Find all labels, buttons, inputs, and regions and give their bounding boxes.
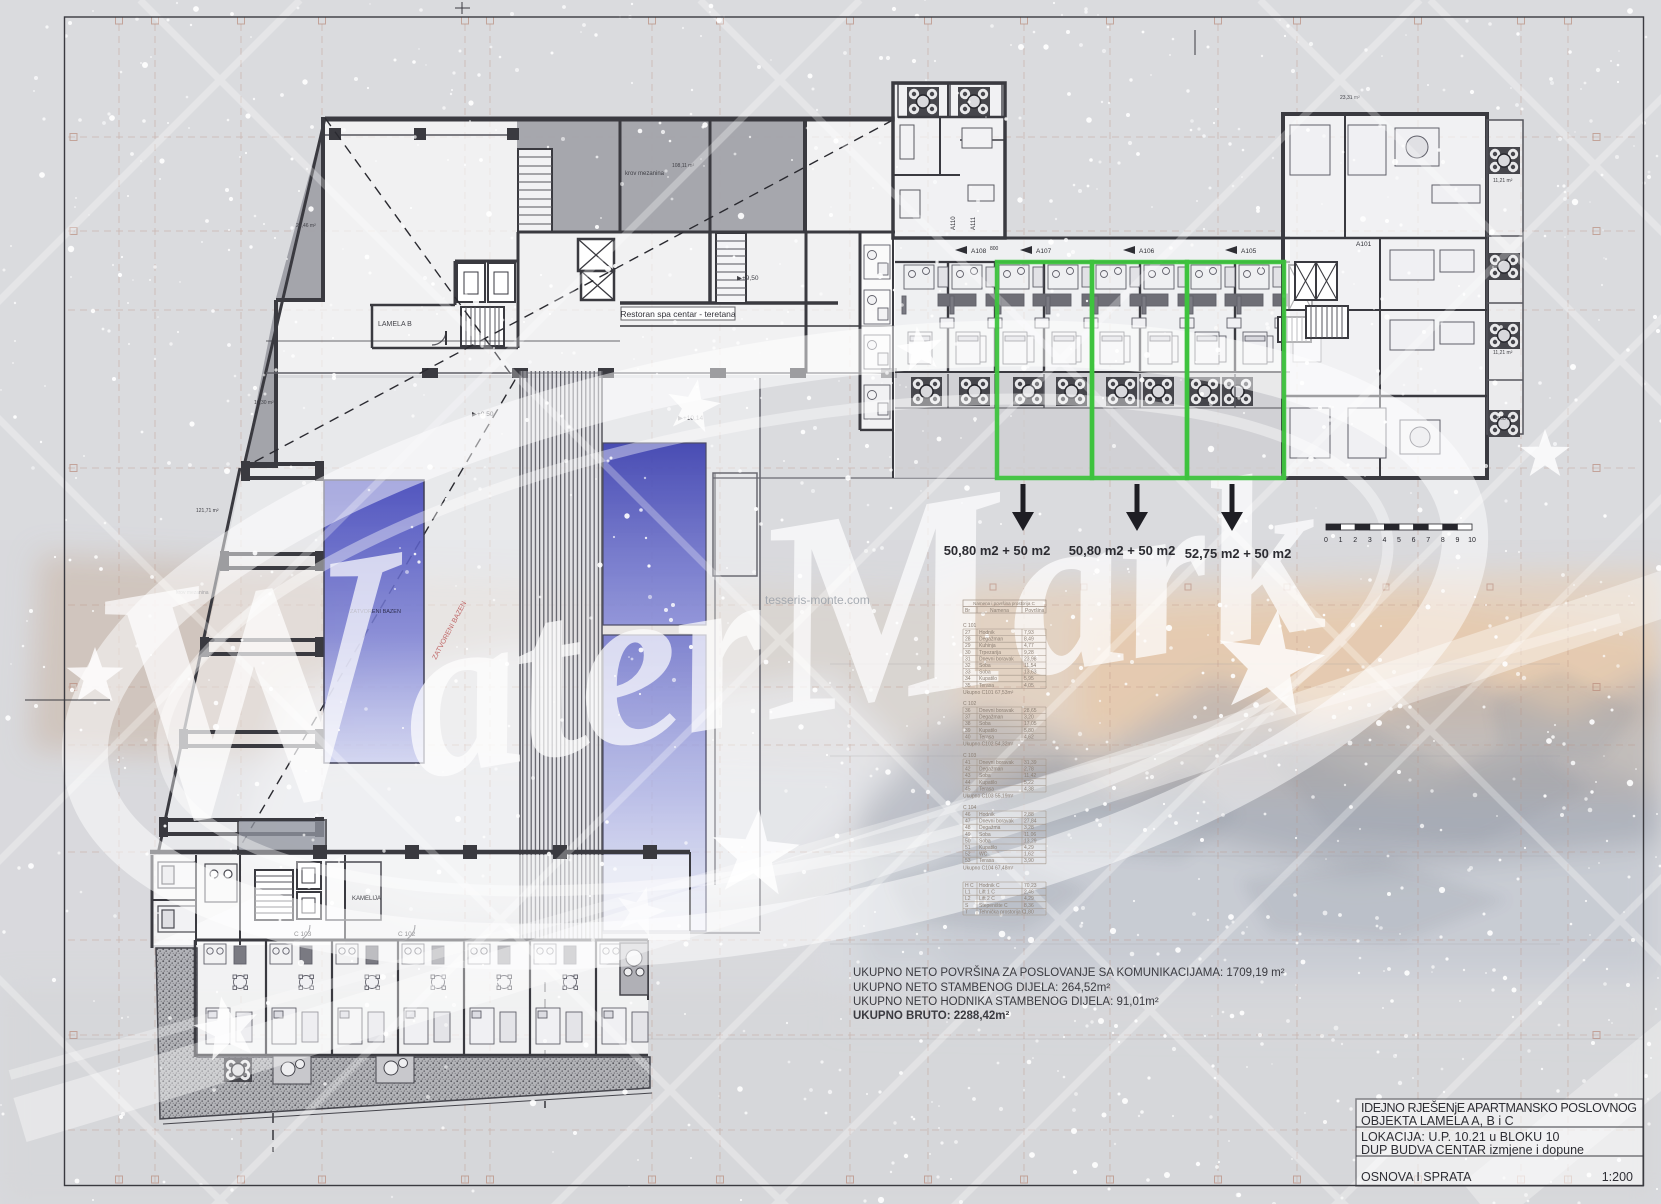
svg-text:5,80: 5,80	[1024, 728, 1034, 734]
svg-text:49: 49	[965, 832, 971, 838]
svg-text:39: 39	[965, 728, 971, 734]
svg-text:43: 43	[965, 773, 971, 779]
svg-text:A101: A101	[1356, 241, 1372, 248]
svg-text:5,95: 5,95	[1024, 676, 1034, 682]
svg-text:A111: A111	[971, 216, 977, 230]
svg-text:34: 34	[965, 676, 971, 682]
svg-text:5,22: 5,22	[1024, 780, 1034, 786]
svg-text:Stepenište C: Stepenište C	[979, 903, 1008, 909]
svg-text:3,90: 3,90	[1024, 858, 1034, 864]
svg-text:T: T	[965, 909, 968, 915]
svg-text:30: 30	[965, 650, 971, 656]
svg-text:Dnevni boravak: Dnevni boravak	[979, 760, 1014, 766]
svg-text:41: 41	[965, 760, 971, 766]
svg-text:28: 28	[965, 637, 971, 643]
svg-text:9,28: 9,28	[1024, 650, 1034, 656]
svg-text:Br: Br	[965, 608, 970, 614]
svg-text:23,98: 23,98	[1024, 656, 1037, 662]
svg-text:8,49: 8,49	[1024, 637, 1034, 643]
svg-text:2,78: 2,78	[1024, 767, 1034, 773]
svg-text:Soba: Soba	[979, 838, 991, 844]
svg-text:17,05: 17,05	[1024, 721, 1037, 727]
svg-text:22,46 m²: 22,46 m²	[296, 223, 316, 229]
svg-text:KAMELIJA: KAMELIJA	[352, 896, 381, 902]
svg-text:53: 53	[965, 858, 971, 864]
svg-text:3: 3	[1368, 537, 1372, 544]
svg-text:tesseris-monte.com: tesseris-monte.com	[765, 593, 870, 607]
svg-text:Ukupno C104 67,48m²: Ukupno C104 67,48m²	[963, 865, 1014, 871]
svg-text:13,29: 13,29	[1024, 838, 1037, 844]
svg-text:40: 40	[965, 734, 971, 740]
svg-text:Hodnik C: Hodnik C	[979, 883, 1000, 889]
svg-text:9: 9	[1455, 537, 1459, 544]
svg-text:3,28: 3,28	[1024, 825, 1034, 831]
svg-text:31,39: 31,39	[1024, 760, 1037, 766]
svg-text:C 102: C 102	[963, 701, 977, 707]
svg-text:3,68 m²: 3,68 m²	[1496, 416, 1513, 422]
svg-text:2,88: 2,88	[1024, 812, 1034, 818]
svg-text:4,29: 4,29	[1024, 845, 1034, 851]
svg-text:UKUPNO NETO HODNIKA STAMBENOG: UKUPNO NETO HODNIKA STAMBENOG DIJELA: 91…	[853, 996, 1159, 1008]
svg-text:51: 51	[965, 845, 971, 851]
svg-text:C 103: C 103	[963, 753, 977, 759]
svg-text:Soba: Soba	[979, 832, 991, 838]
svg-text:Degažman: Degažman	[979, 637, 1003, 643]
svg-text:Soba: Soba	[979, 670, 991, 676]
svg-text:4,38: 4,38	[1024, 786, 1034, 792]
svg-text:IDEJNO RJEŠENjE APARTMANSKO PO: IDEJNO RJEŠENjE APARTMANSKO POSLOVNOG	[1361, 1100, 1637, 1115]
svg-text:LAMELA B: LAMELA B	[378, 321, 412, 328]
svg-text:800: 800	[990, 246, 999, 252]
svg-text:5: 5	[1397, 537, 1401, 544]
svg-text:krov mezanina: krov mezanina	[625, 171, 665, 177]
svg-text:27,84: 27,84	[1024, 819, 1037, 825]
svg-text:28,65: 28,65	[1024, 708, 1037, 714]
svg-text:52: 52	[965, 852, 971, 858]
svg-text:Kupatilo: Kupatilo	[979, 728, 997, 734]
svg-text:44: 44	[965, 780, 971, 786]
svg-text:Terasa: Terasa	[979, 786, 994, 792]
svg-text:Degažman: Degažman	[979, 767, 1003, 773]
svg-text:45: 45	[965, 786, 971, 792]
svg-text:Soba: Soba	[979, 663, 991, 669]
svg-text:29: 29	[965, 643, 971, 649]
svg-text:11,06: 11,06	[1024, 832, 1036, 838]
svg-text:1: 1	[1339, 537, 1343, 544]
svg-text:8: 8	[1441, 537, 1445, 544]
svg-text:UKUPNO NETO STAMBENOG DIJELA:: UKUPNO NETO STAMBENOG DIJELA: 264,52m²	[853, 982, 1110, 994]
svg-text:Dnevni boravak: Dnevni boravak	[979, 656, 1014, 662]
svg-text:Ukupno C102 54,32m²: Ukupno C102 54,32m²	[963, 742, 1014, 748]
svg-text:36: 36	[965, 708, 971, 714]
svg-text:WC: WC	[979, 852, 988, 858]
svg-text:Površina: Površina	[1025, 608, 1045, 614]
svg-text:70,23: 70,23	[1024, 883, 1037, 889]
svg-text:11,54: 11,54	[1024, 663, 1036, 669]
svg-text:4,62: 4,62	[1024, 734, 1034, 740]
svg-text:50,80 m2 + 50 m2: 50,80 m2 + 50 m2	[944, 543, 1051, 558]
svg-text:Dnevni boravak: Dnevni boravak	[979, 819, 1014, 825]
svg-text:Dnevni boravak: Dnevni boravak	[979, 708, 1014, 714]
svg-text:C 104: C 104	[963, 805, 977, 811]
svg-text:6: 6	[1412, 537, 1416, 544]
svg-text:4,05: 4,05	[1024, 683, 1034, 689]
svg-text:C 101: C 101	[963, 623, 977, 629]
svg-text:OBJEKTA LAMELA A, B i C: OBJEKTA LAMELA A, B i C	[1361, 1114, 1514, 1128]
svg-text:Lift 1 C: Lift 1 C	[979, 890, 995, 896]
svg-text:Hodnik: Hodnik	[979, 812, 995, 818]
svg-text:Trpezarija: Trpezarija	[979, 650, 1001, 656]
svg-text:2,46: 2,46	[1024, 890, 1034, 896]
svg-text:A107: A107	[1036, 248, 1052, 255]
svg-text:8,36: 8,36	[1024, 903, 1034, 909]
svg-text:0: 0	[1324, 537, 1328, 544]
svg-text:Hodnik: Hodnik	[979, 630, 995, 636]
svg-text:Namena i površina prostorija C: Namena i površina prostorija C	[973, 601, 1036, 606]
svg-text:11,21 m²: 11,21 m²	[1493, 178, 1513, 184]
svg-text:A108: A108	[971, 248, 987, 255]
svg-text:Ukupno C103 55,19m²: Ukupno C103 55,19m²	[963, 794, 1014, 800]
svg-text:OSNOVA I SPRATA: OSNOVA I SPRATA	[1361, 1170, 1472, 1184]
svg-text:▶+9,50: ▶+9,50	[737, 275, 759, 282]
svg-text:Soba: Soba	[979, 773, 991, 779]
svg-text:Kupatilo: Kupatilo	[979, 676, 997, 682]
svg-text:27: 27	[965, 630, 971, 636]
svg-text:Ukupno C101 67,53m²: Ukupno C101 67,53m²	[963, 690, 1014, 696]
svg-text:1,80: 1,80	[1024, 909, 1034, 915]
svg-text:42: 42	[965, 767, 971, 773]
svg-text:Namena: Namena	[990, 608, 1009, 614]
svg-text:52,75 m2 + 50 m2: 52,75 m2 + 50 m2	[1185, 546, 1292, 561]
svg-text:32: 32	[965, 663, 971, 669]
svg-text:Terasa: Terasa	[979, 858, 994, 864]
svg-text:Lift 2 C: Lift 2 C	[979, 896, 995, 902]
svg-text:Soba: Soba	[979, 721, 991, 727]
svg-text:48: 48	[965, 825, 971, 831]
svg-text:Terasa: Terasa	[979, 734, 994, 740]
svg-text:46: 46	[965, 812, 971, 818]
svg-text:Kuhinja: Kuhinja	[979, 643, 996, 649]
svg-text:37: 37	[965, 715, 971, 721]
svg-text:A105: A105	[1241, 248, 1257, 255]
svg-text:2: 2	[1353, 537, 1357, 544]
svg-text:L2: L2	[965, 896, 971, 902]
svg-text:31: 31	[965, 656, 971, 662]
svg-text:7,93: 7,93	[1024, 630, 1034, 636]
svg-text:UKUPNO NETO POVRŠINA ZA POSLOV: UKUPNO NETO POVRŠINA ZA POSLOVANJE SA KO…	[853, 966, 1285, 979]
svg-text:10: 10	[1468, 537, 1476, 544]
svg-text:4,77: 4,77	[1024, 643, 1034, 649]
svg-text:Restoran spa centar - teretan: Restoran spa centar - teretana	[620, 309, 736, 319]
svg-text:50: 50	[965, 838, 971, 844]
svg-text:Tehnička prostorija C: Tehnička prostorija C	[979, 909, 1026, 915]
svg-text:Kupatilo: Kupatilo	[979, 780, 997, 786]
svg-text:35: 35	[965, 683, 971, 689]
svg-text:33: 33	[965, 670, 971, 676]
svg-text:7: 7	[1426, 537, 1430, 544]
svg-text:Terasa: Terasa	[979, 683, 994, 689]
svg-text:H C: H C	[965, 883, 974, 889]
svg-text:1,62: 1,62	[1024, 852, 1034, 858]
svg-text:16,30 m²: 16,30 m²	[254, 400, 274, 406]
svg-text:11,21 m²: 11,21 m²	[1493, 350, 1513, 356]
svg-text:1:200: 1:200	[1602, 1170, 1633, 1184]
svg-text:A110: A110	[951, 216, 957, 230]
svg-text:4: 4	[1382, 537, 1386, 544]
svg-text:38: 38	[965, 721, 971, 727]
svg-text:LOKACIJA: U.P. 10.21 u BLOKU 1: LOKACIJA: U.P. 10.21 u BLOKU 10	[1361, 1130, 1560, 1144]
svg-text:4,29: 4,29	[1024, 896, 1034, 902]
svg-text:Degažma: Degažma	[979, 825, 1001, 831]
svg-text:L1: L1	[965, 890, 971, 896]
svg-text:50,80 m2 + 50 m2: 50,80 m2 + 50 m2	[1069, 543, 1176, 558]
svg-text:3,20: 3,20	[1024, 715, 1034, 721]
svg-text:UKUPNO BRUTO: 2288,42m²: UKUPNO BRUTO: 2288,42m²	[853, 1010, 1010, 1022]
svg-text:47: 47	[965, 819, 971, 825]
svg-text:Kupatilo: Kupatilo	[979, 845, 997, 851]
svg-text:Degažman: Degažman	[979, 715, 1003, 721]
svg-text:A106: A106	[1139, 248, 1155, 255]
svg-text:11,42: 11,42	[1024, 773, 1036, 779]
svg-text:13,63: 13,63	[1024, 670, 1037, 676]
svg-text:DUP BUDVA CENTAR izmjene i dop: DUP BUDVA CENTAR izmjene i dopune	[1361, 1143, 1584, 1157]
